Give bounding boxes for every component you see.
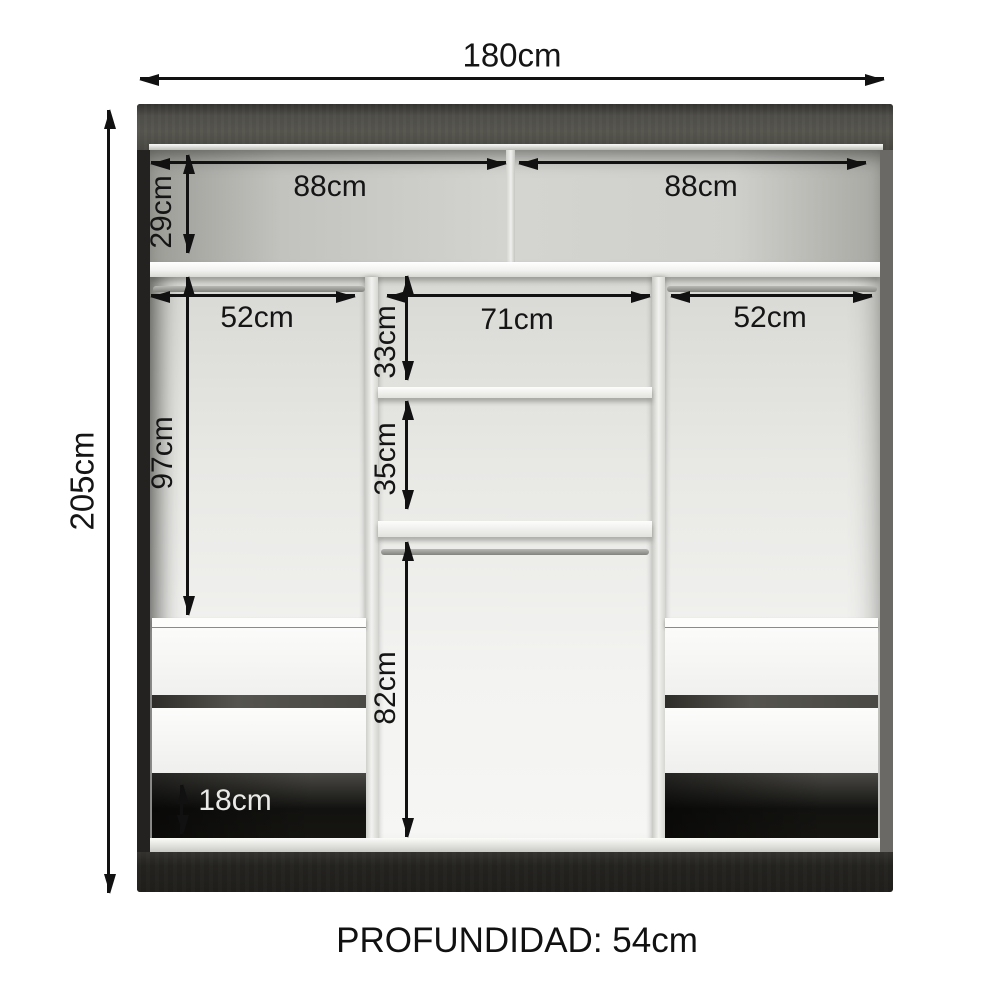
hanging-rod-right — [667, 286, 877, 292]
wardrobe-interior — [150, 150, 880, 852]
dim-arrow-center-middle-height — [405, 401, 408, 509]
dim-arrow-center-upper-height — [405, 276, 408, 380]
dim-label-center-hanging-height: 82cm — [371, 651, 401, 724]
dim-arrow-top-right-width — [519, 161, 866, 164]
hanging-rod-center — [381, 549, 649, 555]
dim-label-total-height: 205cm — [66, 431, 99, 530]
dim-arrow-top-left-width — [151, 161, 506, 164]
dim-arrow-right-column-width — [671, 294, 872, 297]
drawer-gap — [152, 695, 366, 708]
dim-label-base-gap-height: 18cm — [198, 786, 271, 816]
divider-right — [652, 277, 665, 852]
dim-arrow-total-width — [140, 77, 884, 80]
interior-floor — [150, 838, 880, 852]
depth-caption: PROFUNDIDAD: 54cm — [336, 921, 698, 961]
dim-label-top-section-height: 29cm — [147, 175, 177, 248]
dim-arrow-center-column-width — [387, 294, 650, 297]
dim-label-left-hanging-height: 97cm — [148, 416, 178, 489]
under-drawer-space — [665, 773, 878, 838]
dim-label-right-column-width: 52cm — [733, 303, 806, 333]
drawer-front — [665, 627, 878, 696]
top-compartment-divider — [506, 150, 515, 262]
drawer-unit-right — [665, 618, 878, 852]
base-plinth — [137, 852, 893, 892]
drawer-gap — [665, 695, 878, 708]
top-compartment — [150, 150, 880, 262]
wardrobe-frame — [137, 104, 893, 892]
dim-arrow-base-gap-height — [180, 785, 183, 834]
drawer-front — [665, 708, 878, 773]
dim-label-center-middle-height: 35cm — [371, 422, 401, 495]
dim-arrow-total-height — [107, 110, 110, 893]
dim-label-center-upper-height: 33cm — [371, 305, 401, 378]
drawer-front — [152, 627, 366, 696]
dim-arrow-left-hanging-height — [186, 277, 189, 615]
dim-label-top-right-width: 88cm — [664, 172, 737, 202]
wardrobe-dimension-diagram: 180cm 205cm 88cm 88cm 29cm 52cm 71cm 52c… — [0, 0, 1000, 1000]
dim-label-total-width: 180cm — [462, 39, 561, 72]
dim-arrow-center-hanging-height — [405, 542, 408, 837]
dim-label-top-left-width: 88cm — [293, 172, 366, 202]
drawer-front — [152, 708, 366, 773]
dim-arrow-top-section-height — [186, 155, 189, 253]
center-shelf-lower — [378, 521, 652, 537]
drawer-top-surface — [665, 618, 878, 627]
full-width-shelf — [150, 262, 880, 277]
center-shelf-upper — [378, 387, 652, 398]
dim-label-center-column-width: 71cm — [480, 305, 553, 335]
dim-label-left-column-width: 52cm — [220, 303, 293, 333]
drawer-top-surface — [152, 618, 366, 627]
